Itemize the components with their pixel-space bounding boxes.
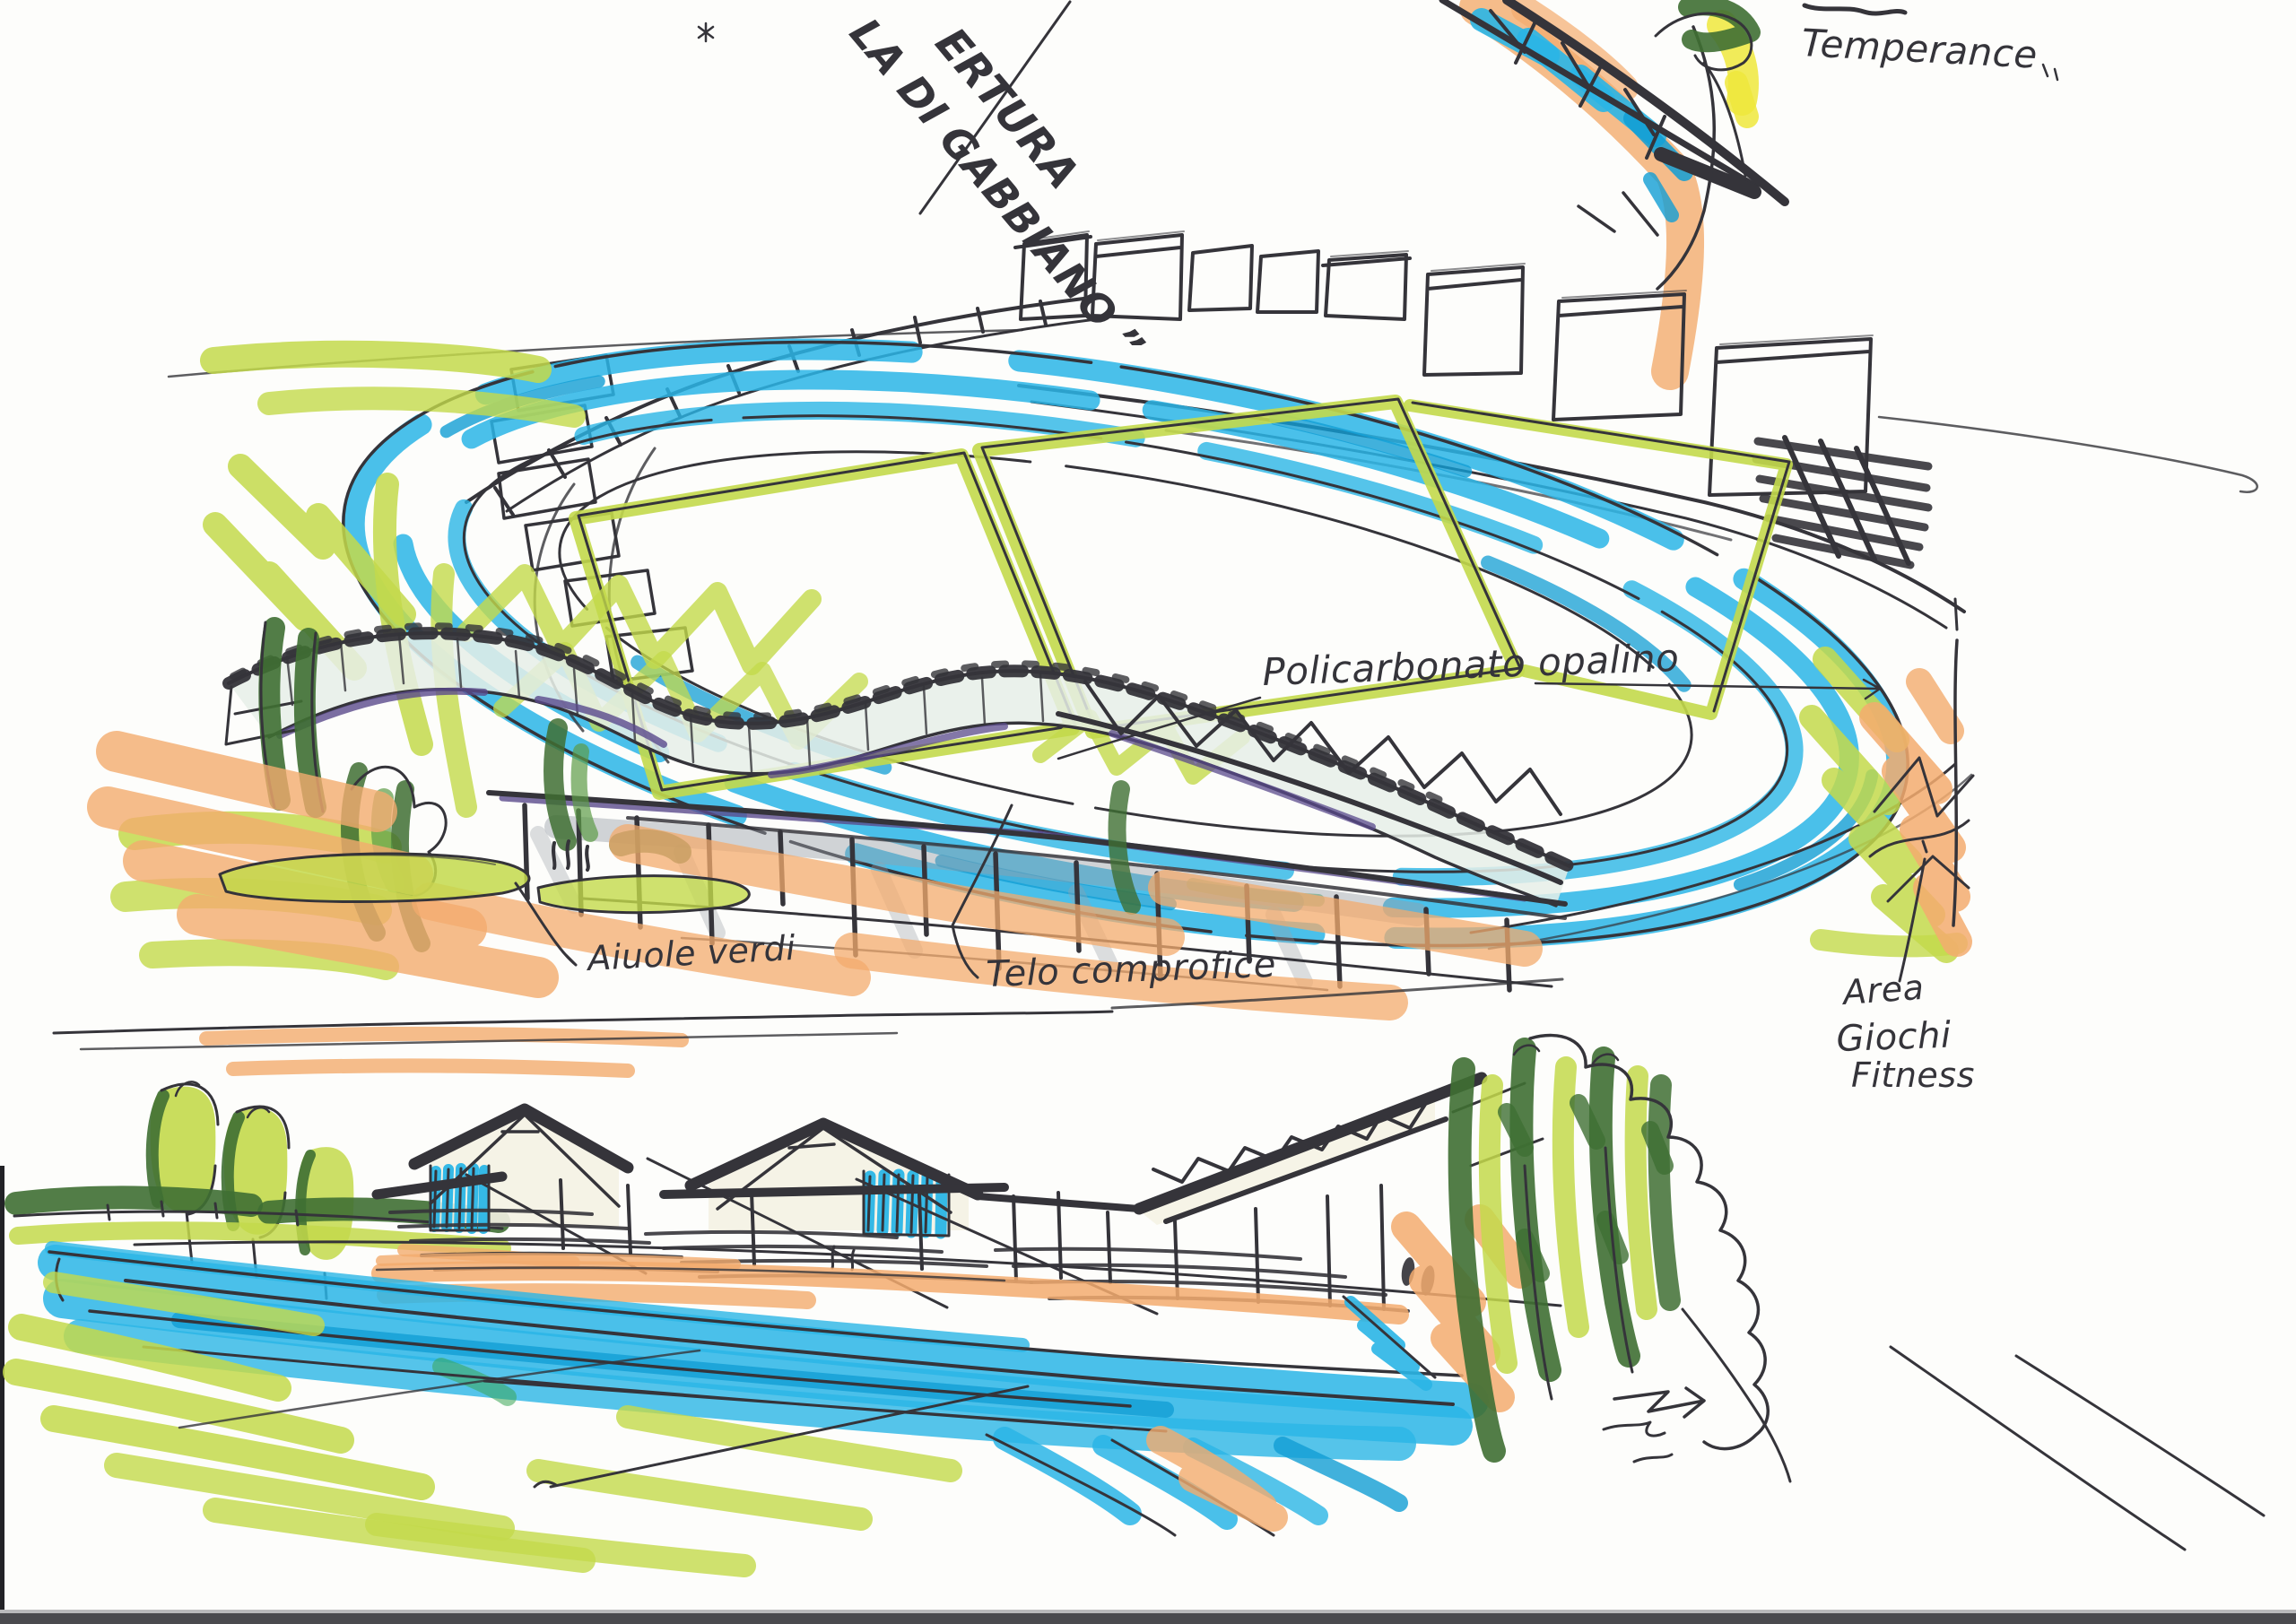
bottom-elevation-sketch <box>14 1036 2264 1566</box>
fitness-label-2: Giochi <box>1836 1015 1952 1060</box>
concept-sketch-canvas: ERTURA LA DI GABBIANO ” Temperance <box>0 0 2296 1624</box>
temperance-annotation: Temperance <box>1800 5 2057 80</box>
asterisk-mark <box>699 23 713 41</box>
horizon-line-right <box>1879 417 2257 492</box>
scribble-arrow <box>1614 1388 1704 1417</box>
main-aerial-sketch: Policarbonato opalino Aiuole verdi Telo … <box>54 231 2257 1095</box>
cover-note-annotation: ERTURA LA DI GABBIANO ” <box>699 0 1200 369</box>
fitness-label-3: Fitness <box>1851 1055 1975 1095</box>
corner-diagonal-lines <box>1891 1347 2264 1550</box>
corner-mini-sketch <box>1442 0 1785 371</box>
cutoff-scribble <box>1805 5 1905 13</box>
fitness-label-1: Area <box>1839 968 1926 1012</box>
sketch-sheet: ERTURA LA DI GABBIANO ” Temperance <box>0 0 2296 1624</box>
temperance-label: Temperance <box>1800 21 2038 77</box>
